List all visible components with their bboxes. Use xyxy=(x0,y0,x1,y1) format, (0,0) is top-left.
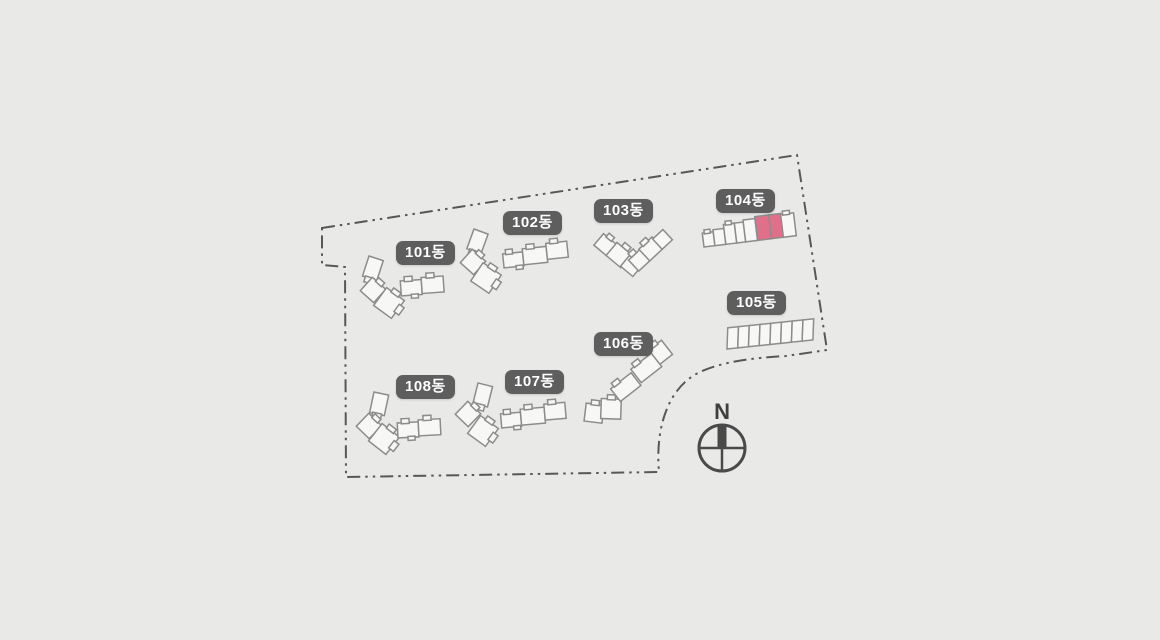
site-plan-canvas: N xyxy=(0,0,1160,640)
label-building-105[interactable]: 105동 xyxy=(727,291,786,315)
compass-north-needle xyxy=(718,425,727,448)
building-104[interactable] xyxy=(701,210,796,247)
label-building-102[interactable]: 102동 xyxy=(503,211,562,235)
label-building-103[interactable]: 103동 xyxy=(594,199,653,223)
building-103[interactable] xyxy=(594,225,673,277)
building-101[interactable] xyxy=(360,256,444,321)
label-building-107[interactable]: 107동 xyxy=(505,370,564,394)
compass-north-label: N xyxy=(714,399,730,424)
label-building-104[interactable]: 104동 xyxy=(716,189,775,213)
label-building-108[interactable]: 108동 xyxy=(396,375,455,399)
label-building-106[interactable]: 106동 xyxy=(594,332,653,356)
label-building-101[interactable]: 101동 xyxy=(396,241,455,265)
building-108[interactable] xyxy=(356,392,441,457)
site-plan: N 101동 102동 103동 104동 105동 106동 107동 108… xyxy=(0,0,1160,640)
building-105[interactable] xyxy=(725,319,816,349)
building-102[interactable] xyxy=(460,229,569,296)
compass: N xyxy=(699,399,745,471)
